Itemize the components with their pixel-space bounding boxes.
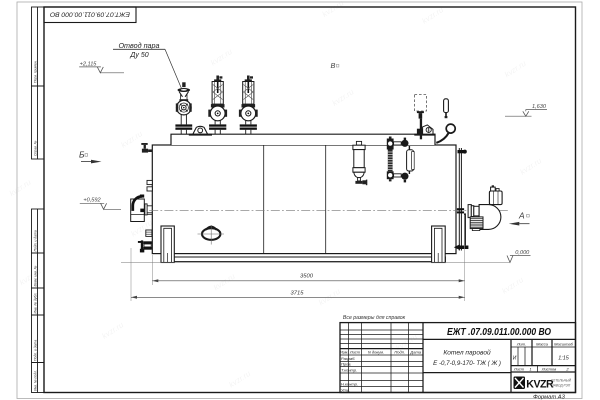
svg-text:Листов: Листов [541, 367, 557, 372]
svg-text:Б: Б [79, 150, 85, 160]
svg-text:Дата: Дата [409, 349, 421, 354]
svg-text:Изм.: Изм. [340, 349, 349, 354]
svg-text:Взам. инв. №: Взам. инв. № [33, 265, 37, 286]
svg-text:И: И [513, 356, 517, 362]
svg-text:Инв. № дубл.: Инв. № дубл. [33, 293, 37, 314]
svg-text:Е -0,7-0,9-170- ТЖ ( Ж ): Е -0,7-0,9-170- ТЖ ( Ж ) [433, 360, 501, 367]
svg-text:Масса: Масса [536, 341, 549, 346]
svg-text:Подп. и дата: Подп. и дата [33, 340, 37, 361]
svg-text:3715: 3715 [291, 290, 305, 296]
svg-text:Отвод пара: Отвод пара [118, 41, 159, 50]
svg-text:ЕЖТ.07.09.011.00.000 ВО: ЕЖТ.07.09.011.00.000 ВО [50, 11, 130, 18]
svg-text:KVZR: KVZR [526, 379, 554, 391]
svg-text:Утв.: Утв. [341, 387, 350, 392]
svg-text:Все размеры для справок: Все размеры для справок [343, 315, 406, 321]
svg-text:Инв. № подл.: Инв. № подл. [33, 370, 37, 391]
svg-text:А: А [518, 210, 525, 220]
svg-text:Пров.: Пров. [341, 362, 352, 367]
svg-text:Котел паровой: Котел паровой [443, 348, 491, 356]
svg-text:Подп.: Подп. [394, 349, 405, 354]
svg-text:Н.контр.: Н.контр. [341, 381, 358, 386]
svg-text:Лист: Лист [349, 349, 361, 354]
svg-text:1: 1 [529, 367, 531, 372]
svg-text:Подп. и дата: Подп. и дата [33, 230, 37, 251]
svg-text:Разраб.: Разраб. [341, 356, 355, 361]
svg-text:1:15: 1:15 [558, 356, 569, 362]
svg-text:В: В [331, 61, 336, 70]
svg-text:Справ. №: Справ. № [33, 140, 37, 156]
svg-text:Формат А3: Формат А3 [533, 395, 565, 400]
svg-text:+0,592: +0,592 [83, 198, 101, 204]
svg-text:ЕЖТ .07.09.011.00.000 ВО: ЕЖТ .07.09.011.00.000 ВО [447, 327, 551, 338]
svg-text:Лит.: Лит. [516, 341, 526, 346]
svg-text:Т.контр.: Т.контр. [341, 368, 357, 373]
svg-text:Масштаб: Масштаб [554, 341, 573, 346]
svg-text:КОТЕЛЬНЫЙ: КОТЕЛЬНЫЙ [551, 379, 572, 383]
svg-text:Лист: Лист [513, 367, 525, 372]
svg-text:3500: 3500 [300, 273, 314, 279]
svg-text:Перв. примен.: Перв. примен. [33, 60, 37, 83]
svg-text:N докум.: N докум. [368, 349, 384, 354]
svg-text:Ду 50: Ду 50 [129, 52, 148, 59]
svg-text:ЗАВОД РЭП: ЗАВОД РЭП [552, 384, 571, 388]
